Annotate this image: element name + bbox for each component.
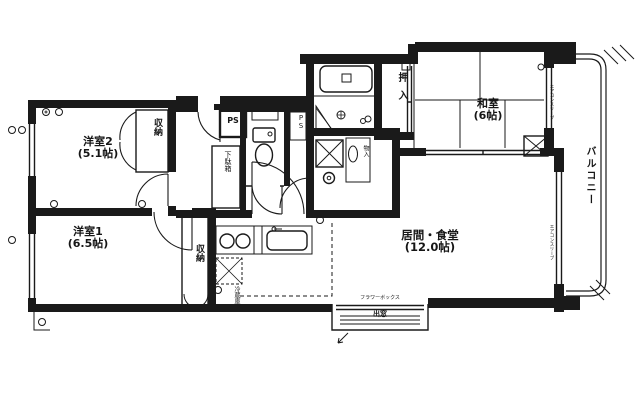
shoe-box-label: 下駄箱 (218, 151, 231, 207)
room-size: (6.5帖) (46, 238, 130, 250)
ps-top-label: PS (220, 117, 246, 125)
flower-box-label: フラワーボックス (336, 296, 424, 301)
balcony-label: バルコニー (578, 146, 594, 250)
room-name: 洋室1 (46, 226, 130, 238)
aircon-sleeve-label-2: エアコンスリーブ (546, 224, 553, 278)
floorplan-drawing (0, 0, 640, 401)
room-label-living-dining: 居間・食堂 (12.0帖) (378, 229, 482, 253)
room-name: 洋室2 (58, 136, 138, 148)
floor-plan: 洋室2 (5.1帖) 洋室1 (6.5帖) 和室 (6帖) 居間・食堂 (12.… (0, 0, 640, 401)
room-size: (5.1帖) (58, 148, 138, 160)
room-name: 和室 (452, 98, 524, 110)
room-label-washitsu: 和室 (6帖) (452, 98, 524, 121)
room-label-yoshitsu1: 洋室1 (6.5帖) (46, 226, 130, 249)
mono-ire-label: 物入 (359, 145, 368, 167)
closet-left-label: 収納 (188, 244, 203, 304)
oshiire-label: 押入 (388, 72, 406, 134)
bay-window-label: 出窓 (356, 311, 404, 318)
fridge-label: 冷蔵庫 (229, 286, 239, 314)
closet-top-label: 収納 (143, 118, 161, 170)
room-size: (12.0帖) (378, 241, 482, 253)
ps-mid-label: PS (293, 114, 304, 140)
room-size: (6帖) (452, 110, 524, 122)
aircon-sleeve-label-1: エアコンスリーブ (546, 84, 553, 138)
room-label-yoshitsu2: 洋室2 (5.1帖) (58, 136, 138, 159)
